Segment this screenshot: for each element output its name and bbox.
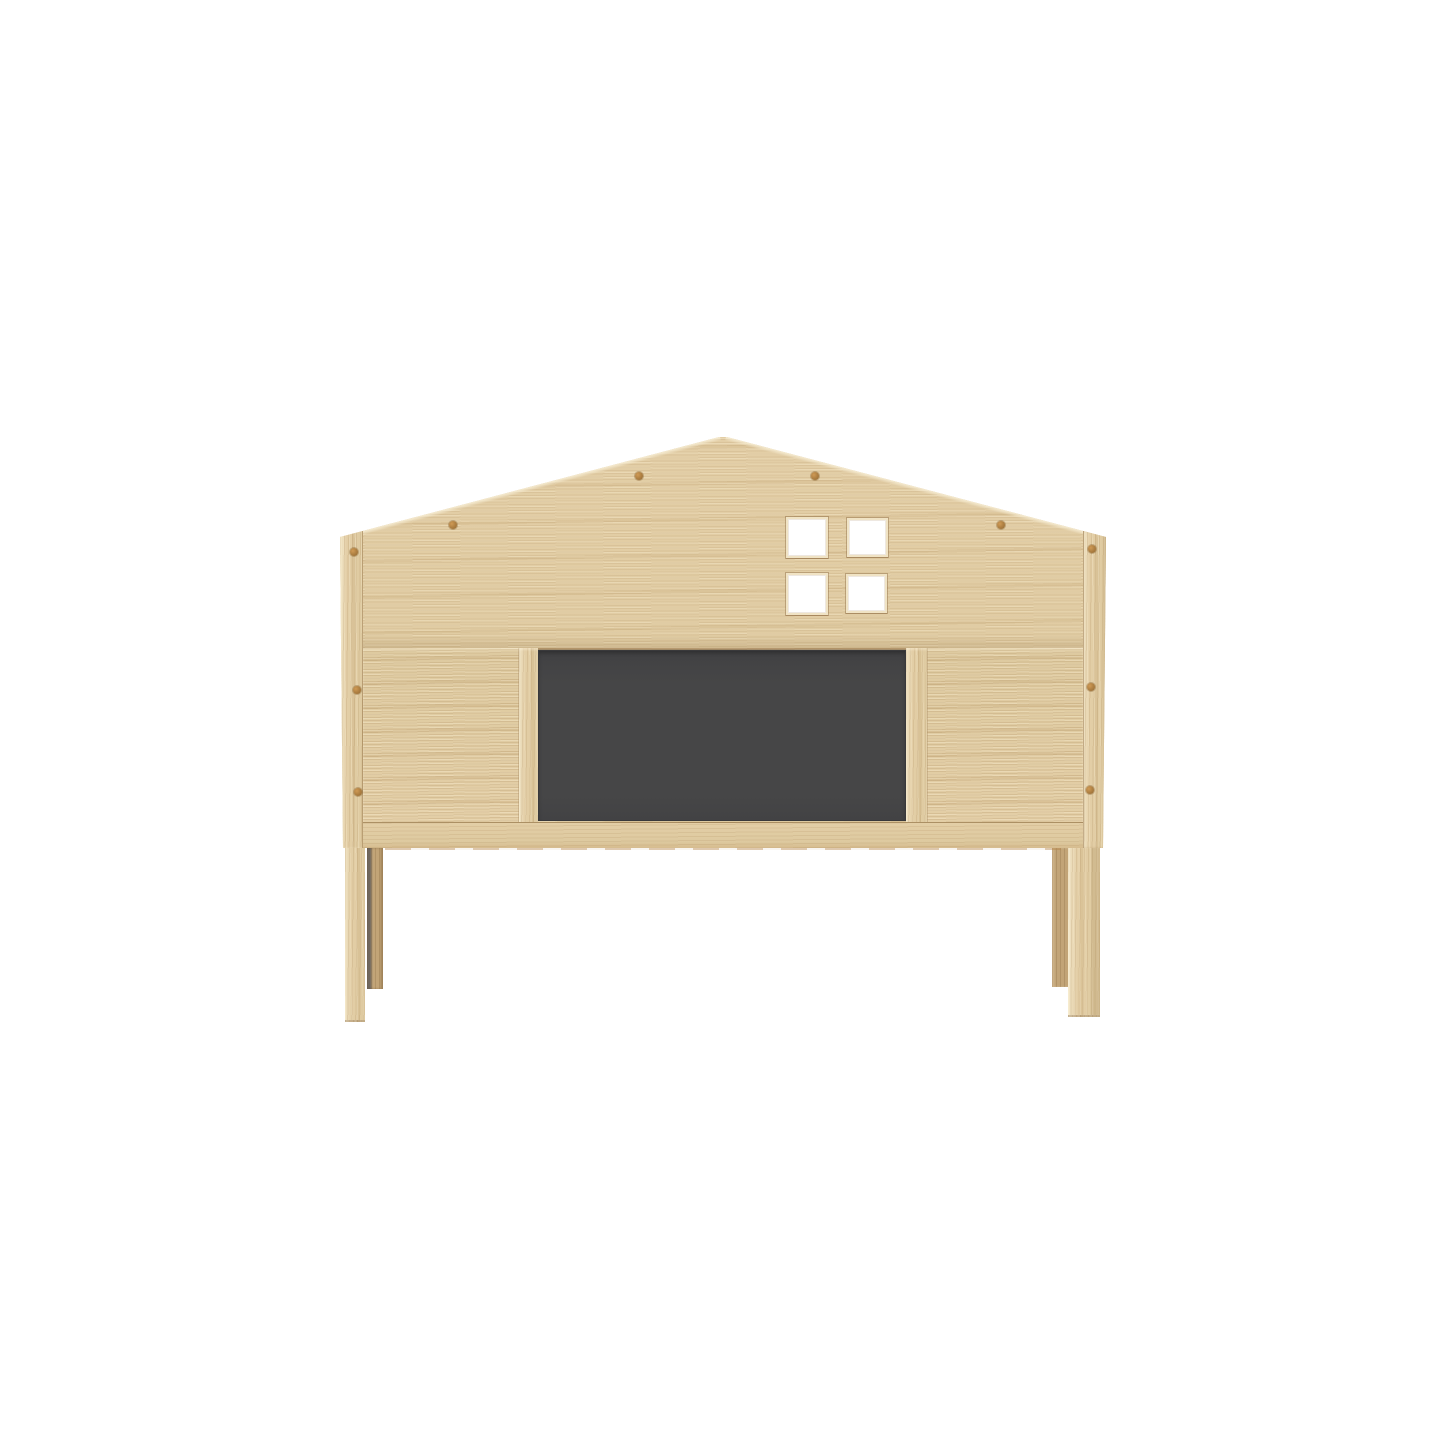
roof-edge-right (725, 437, 1106, 541)
chalkboard-frame-right-stile (906, 648, 927, 822)
roof-edge-left (340, 437, 721, 541)
screw-cap-right-top (1088, 545, 1096, 553)
headboard-body (340, 437, 1106, 848)
screw-cap-right-bottom (1086, 786, 1094, 794)
right-wood-panel (927, 648, 1083, 822)
screw-cap-left-bottom (354, 788, 362, 796)
gable-rail-seam (363, 635, 1083, 649)
screw-cap-roof-right-upper (811, 472, 819, 480)
screw-cap-left-top (350, 548, 358, 556)
screw-cap-roof-right-lower (997, 521, 1005, 529)
screw-cap-roof-left-lower (449, 521, 457, 529)
right-edge-stile (1083, 531, 1106, 848)
window-pane-top-right (847, 518, 888, 557)
window-pane-top-left (786, 517, 828, 558)
screw-cap-right-middle (1087, 683, 1095, 691)
window-pane-bottom-right (846, 574, 887, 613)
bottom-rail (363, 822, 1083, 849)
left-front-leg (345, 848, 365, 1022)
house-headboard (340, 437, 1106, 1020)
left-back-leg (367, 848, 383, 989)
chalkboard-panel (538, 650, 906, 821)
window-pane-bottom-left (786, 573, 828, 615)
chalkboard-frame-left-stile (519, 648, 538, 822)
right-front-leg (1068, 848, 1100, 1017)
screw-cap-roof-left-upper (635, 472, 643, 480)
left-wood-panel (363, 648, 519, 822)
product-image-canvas (0, 0, 1445, 1445)
screw-cap-left-middle (353, 686, 361, 694)
hidden-rail-edge (385, 848, 1061, 850)
